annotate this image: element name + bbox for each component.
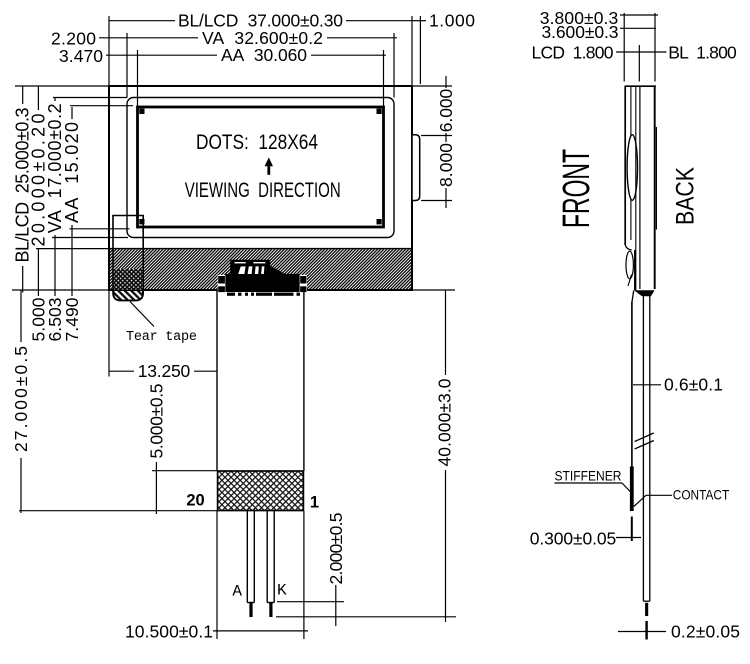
svg-text:AA 15.020: AA 15.020 bbox=[62, 122, 82, 223]
svg-text:BACK: BACK bbox=[672, 167, 700, 225]
svg-text:K: K bbox=[277, 581, 287, 599]
svg-text:BL 1.800: BL 1.800 bbox=[668, 42, 737, 62]
svg-text:CONTACT: CONTACT bbox=[673, 488, 730, 503]
svg-text:13.250: 13.250 bbox=[138, 361, 191, 381]
svg-text:3.470: 3.470 bbox=[59, 46, 103, 66]
svg-text:A: A bbox=[232, 582, 242, 600]
svg-text:VIEWING DIRECTION: VIEWING DIRECTION bbox=[185, 179, 341, 202]
svg-text:Tear tape: Tear tape bbox=[126, 330, 197, 345]
svg-text:1: 1 bbox=[310, 493, 319, 511]
svg-text:10.500±0.1: 10.500±0.1 bbox=[125, 622, 213, 642]
svg-text:8.000: 8.000 bbox=[436, 143, 456, 187]
svg-text:1.000: 1.000 bbox=[429, 11, 475, 31]
svg-text:FRONT: FRONT bbox=[556, 149, 598, 228]
svg-text:40.000±3.0: 40.000±3.0 bbox=[435, 378, 455, 466]
svg-text:STIFFENER: STIFFENER bbox=[555, 468, 622, 483]
svg-text:AA 30.060: AA 30.060 bbox=[221, 45, 307, 65]
svg-text:20: 20 bbox=[186, 492, 204, 510]
svg-text:0.300±0.05: 0.300±0.05 bbox=[530, 528, 617, 548]
svg-text:LCD 1.800: LCD 1.800 bbox=[532, 42, 614, 62]
svg-text:0.6±0.1: 0.6±0.1 bbox=[664, 375, 723, 395]
svg-text:7.490: 7.490 bbox=[62, 297, 82, 341]
svg-text:0.2±0.05: 0.2±0.05 bbox=[671, 622, 740, 642]
svg-text:DOTS: 128X64: DOTS: 128X64 bbox=[196, 131, 318, 154]
svg-text:6.000: 6.000 bbox=[436, 88, 456, 132]
svg-text:3.600±0.3: 3.600±0.3 bbox=[542, 22, 619, 42]
svg-text:5.000±0.5: 5.000±0.5 bbox=[146, 384, 166, 459]
svg-text:2.000±0.5: 2.000±0.5 bbox=[326, 513, 346, 585]
